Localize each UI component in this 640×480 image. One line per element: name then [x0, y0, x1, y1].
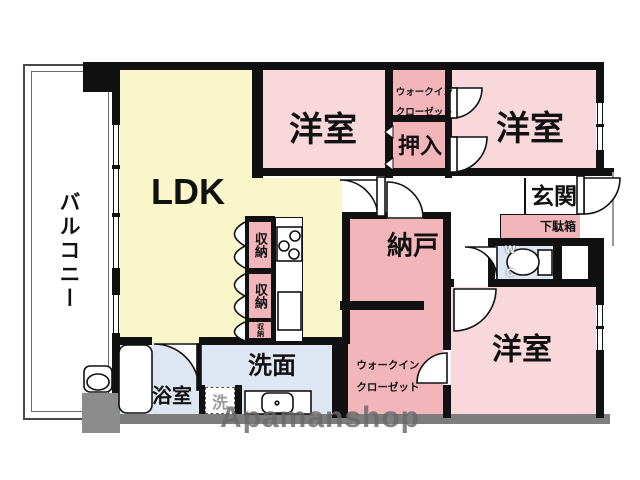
label-wic2: ウォークイン クローゼット: [345, 349, 420, 404]
label-wic1-line1: ウォークイン: [396, 87, 453, 98]
stove-burner: [289, 249, 299, 259]
toilet-tank: [538, 250, 552, 275]
bifold-arc: [235, 322, 246, 341]
bifold-arc: [235, 246, 246, 268]
label-genkan: 玄関: [531, 184, 577, 208]
label-wc: W C: [493, 233, 516, 291]
kitchen-sink-icon: [278, 292, 301, 330]
label-wc-line1: W: [505, 244, 515, 256]
stove-burner: [290, 231, 300, 241]
door-leaf-bath: [197, 344, 201, 390]
label-wic1: ウォークイン クローゼット: [385, 78, 453, 128]
label-storage1: 収納: [253, 232, 267, 258]
label-room3: 洋室: [492, 334, 552, 366]
door-arc-room3: [454, 289, 496, 331]
door-arc-bath: [154, 344, 199, 389]
label-ldk: LDK: [151, 173, 225, 211]
bifold-arc: [235, 274, 246, 296]
door-arc-nando: [387, 182, 423, 218]
bathtub-icon: [119, 345, 152, 413]
label-room2: 洋室: [496, 112, 564, 148]
door-arc-ldk: [340, 180, 378, 218]
label-yokushitsu: 浴室: [152, 387, 192, 408]
label-balcony: バルコニー: [57, 191, 79, 311]
label-senmen: 洗面: [248, 353, 296, 378]
door-arc-wic2: [417, 353, 447, 383]
door-leaf-ldk: [377, 177, 385, 216]
balcony-sink-bowl: [87, 374, 109, 390]
label-wic1-line2: クローゼット: [396, 107, 453, 118]
label-storage2: 収納: [253, 283, 267, 309]
stove-burner: [279, 241, 289, 251]
label-wic2-line2: クローゼット: [356, 382, 419, 394]
watermark: Apamanshop: [220, 401, 420, 435]
bifold-arc: [235, 222, 246, 246]
label-wc-line2: C: [506, 267, 514, 279]
label-storage3: 収納: [256, 323, 263, 337]
label-oshiire: 押入: [398, 134, 442, 157]
door-leaf-entry: [577, 176, 584, 214]
label-getabako: 下駄箱: [540, 221, 576, 234]
floorplan: 洗: [0, 0, 640, 480]
door-leaf-oshiire: [450, 137, 457, 172]
bifold-arc: [235, 296, 246, 318]
label-wic2-line1: ウォークイン: [356, 359, 419, 371]
slide-door-chevron: [385, 158, 393, 170]
label-room1: 洋室: [289, 113, 357, 149]
label-nando: 納戸: [387, 232, 439, 259]
door-arc-entry: [584, 178, 620, 214]
